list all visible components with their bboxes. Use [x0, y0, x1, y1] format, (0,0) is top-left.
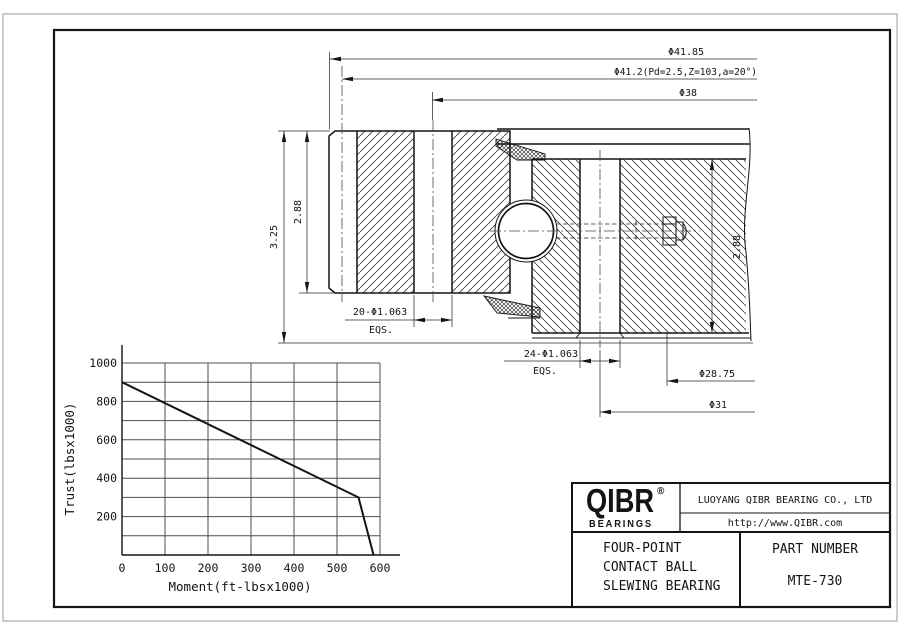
x-tick: 600	[370, 561, 391, 575]
logo-text: QIBR	[586, 482, 654, 519]
logo-subtext: BEARINGS	[589, 519, 653, 530]
dim-bolt-circle-inner: Φ31	[709, 400, 727, 411]
part-number-value: MTE-730	[788, 574, 843, 589]
inner-ring-hatch-right	[620, 159, 746, 333]
y-tick: 600	[96, 433, 117, 447]
svg-text:FOUR-POINT: FOUR-POINT	[603, 541, 681, 556]
y-tick: 800	[96, 394, 117, 408]
ball	[499, 204, 554, 259]
dim-inner-ring-height: 2.88	[732, 235, 743, 259]
drawing-sheet: Φ41.85 Φ41.2(Pd=2.5,Z=103,a=20°) Φ38 3.2…	[0, 0, 900, 636]
dim-outer-ring-height: 2.88	[293, 200, 304, 224]
dim-holes-inner-eqs: EQS.	[533, 366, 557, 377]
bearing-section-view	[329, 66, 751, 348]
x-tick: 100	[155, 561, 176, 575]
x-tick: 500	[327, 561, 348, 575]
product-description: FOUR-POINT CONTACT BALL SLEWING BEARING	[603, 541, 721, 594]
y-tick: 200	[96, 510, 117, 524]
y-tick: 400	[96, 471, 117, 485]
registered-mark: ®	[657, 486, 665, 497]
x-tick: 200	[198, 561, 219, 575]
dim-inner-diameter-1: Φ28.75	[699, 369, 735, 380]
svg-text:SLEWING BEARING: SLEWING BEARING	[603, 579, 721, 594]
part-number-label: PART NUMBER	[772, 542, 858, 557]
x-tick: 300	[241, 561, 262, 575]
outer-ring-hatch-left	[357, 131, 414, 293]
x-tick-labels: 0100200300400500600	[119, 561, 391, 575]
y-tick-labels: 2004006008001000	[89, 356, 117, 524]
y-tick: 1000	[89, 356, 117, 370]
dim-outer-diameter: Φ41.85	[668, 47, 704, 58]
dim-holes-outer-eqs: EQS.	[369, 325, 393, 336]
dim-gear-pitch: Φ41.2(Pd=2.5,Z=103,a=20°)	[614, 67, 757, 78]
chart-series	[122, 382, 374, 555]
x-axis-label: Moment(ft-lbsx1000)	[169, 579, 312, 594]
company-name: LUOYANG QIBR BEARING CO., LTD	[698, 495, 873, 506]
dim-holes-outer: 20-Φ1.063	[353, 307, 407, 318]
dim-bolt-circle-outer: Φ38	[679, 88, 697, 99]
x-tick: 0	[119, 561, 126, 575]
engineering-drawing: Φ41.85 Φ41.2(Pd=2.5,Z=103,a=20°) Φ38 3.2…	[0, 0, 900, 636]
dim-overall-height: 3.25	[269, 225, 280, 249]
x-tick: 400	[284, 561, 305, 575]
company-logo: QIBR ® BEARINGS	[586, 482, 665, 530]
outer-border	[3, 14, 897, 621]
company-website: http://www.QIBR.com	[728, 518, 842, 529]
title-block: QIBR ® BEARINGS LUOYANG QIBR BEARING CO.…	[572, 482, 890, 607]
chart-grid	[122, 363, 380, 555]
dim-holes-inner: 24-Φ1.063	[524, 349, 578, 360]
capacity-chart: 0100200300400500600 2004006008001000 Tru…	[62, 345, 400, 594]
y-axis-label: Trust(lbsx1000)	[62, 403, 77, 516]
svg-text:CONTACT BALL: CONTACT BALL	[603, 560, 697, 575]
capacity-curve	[122, 382, 374, 555]
page-border	[3, 14, 897, 621]
